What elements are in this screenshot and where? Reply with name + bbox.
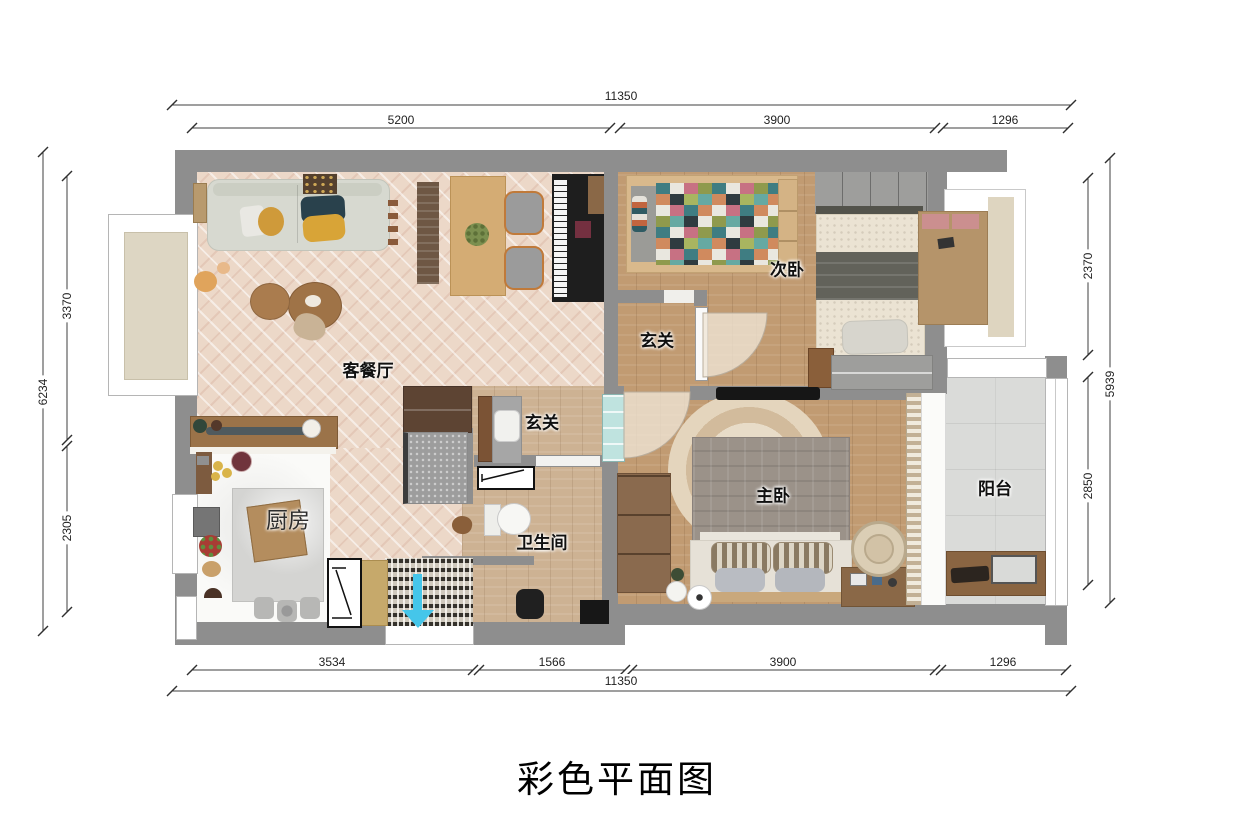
sofa-throw-yellow [302, 213, 346, 243]
wall-balcony-corner-tr [1045, 356, 1067, 378]
desk-photo-frame [850, 573, 867, 586]
side-table [193, 183, 207, 223]
coffee-table-dish [305, 295, 321, 307]
plan-title: 彩色平面图 [517, 749, 717, 803]
sideboard-plate [302, 419, 321, 438]
shower-unit [403, 432, 468, 504]
dim-bottom-seg2: 1566 [536, 655, 569, 669]
corridor-door-leaf [695, 307, 708, 381]
bathroom-door-symbol [477, 466, 535, 490]
wall-corridor-top [604, 290, 664, 303]
tv [716, 387, 820, 400]
bathroom-top-threshold [536, 456, 600, 466]
entrance-arrow-head-icon [402, 610, 434, 628]
lemon [211, 472, 220, 481]
washbasin-sink [494, 410, 520, 442]
food-plate-dark [231, 451, 252, 472]
dim-bottom-seg3: 3900 [767, 655, 800, 669]
rattan-chair-seat [864, 534, 894, 564]
wardrobe-master [617, 473, 671, 593]
piano-keys [554, 180, 567, 297]
dim-right-seg1: 2370 [1081, 250, 1095, 283]
single-bed-pillow [841, 319, 908, 355]
kitchen-back-door [176, 596, 197, 640]
dim-bottom-total: 11350 [602, 674, 640, 688]
balcony-window-right [1045, 378, 1068, 606]
wall-balcony-corner-br [1045, 600, 1067, 645]
room-label-hallway-lower: 玄关 [525, 409, 559, 434]
food-plate-tan [202, 561, 221, 577]
piano-bench [575, 221, 591, 238]
coffee-table-small [250, 283, 290, 320]
bay-window-bedroom2-seat [988, 197, 1014, 337]
bed-pillow-gray [775, 568, 825, 592]
bar-stool [277, 600, 297, 622]
sofa-pillow-mustard [258, 207, 284, 236]
bar-stool [300, 597, 320, 619]
bedside-table [666, 581, 687, 602]
dim-bottom-seg4: 1296 [987, 655, 1020, 669]
tatami-cushion [922, 214, 949, 229]
floor-cushion-orange [194, 271, 217, 292]
corridor-threshold [664, 290, 696, 303]
kids-bed-pillow [632, 196, 647, 232]
open-door-leaf [478, 396, 493, 462]
room-label-hallway-upper: 玄关 [640, 327, 674, 352]
office-chair [516, 589, 544, 619]
bed-foot-board [694, 592, 846, 602]
sideboard-bowl [193, 419, 207, 433]
balcony-drying-rack [991, 555, 1037, 584]
dim-bottom-seg1: 3534 [316, 655, 349, 669]
plant-pot [671, 568, 684, 581]
floor-mat-dark [580, 600, 609, 624]
dim-top-seg2: 3900 [761, 113, 794, 127]
wall-living-right [604, 172, 618, 294]
dim-left-seg2: 2305 [60, 512, 74, 545]
floor-cushion-small [217, 262, 230, 274]
bed-pillow-gray [715, 568, 765, 592]
wall-shelf [303, 174, 337, 194]
dim-left-seg1: 3370 [60, 290, 74, 323]
tatami-cushion [952, 214, 979, 229]
bay-window-living-seat [124, 232, 188, 380]
balcony-dark-item [951, 566, 990, 584]
wall-corridor-left [604, 292, 618, 390]
entry-cabinet [403, 386, 472, 433]
bead-curtain [906, 393, 922, 605]
lemon [213, 461, 223, 471]
wall-bottom-right [616, 604, 1067, 625]
dim-left-total: 6234 [36, 376, 50, 409]
floor-plan-page: 客餐厅 厨房 卫生间 玄关 玄关 次卧 主卧 阳台 11350 5200 390… [0, 0, 1240, 826]
glass-display-partition [602, 394, 625, 462]
dim-top-total: 11350 [602, 89, 640, 103]
room-label-balcony: 阳台 [978, 475, 1012, 500]
kitchen-fridge [193, 507, 220, 537]
piano-shelf [588, 176, 604, 214]
room-label-bathroom: 卫生间 [517, 529, 568, 554]
refrigerator-symbol [327, 558, 362, 628]
dresser-bedroom2 [831, 355, 933, 390]
dining-plant [465, 223, 489, 246]
dim-right-total: 5939 [1103, 368, 1117, 401]
storage-strip [358, 560, 388, 626]
decor-dots-column [388, 193, 398, 245]
dim-top-seg1: 5200 [385, 113, 418, 127]
balcony-window-top [947, 358, 1047, 378]
sideboard-bowl [211, 420, 222, 431]
dim-right-seg2: 2850 [1081, 470, 1095, 503]
sideboard-rail [206, 427, 316, 435]
bedside-table [687, 585, 712, 610]
kids-bed-quilt [656, 183, 778, 265]
room-label-bedroom2: 次卧 [770, 256, 804, 281]
kitchen-appliance [197, 456, 209, 465]
entrance-arrow-icon [413, 574, 422, 612]
runner-rug [417, 182, 439, 284]
room-label-kitchen: 厨房 [266, 503, 310, 535]
quilt-pattern [656, 183, 778, 265]
sofa-seam [297, 185, 298, 243]
room-label-living: 客餐厅 [343, 357, 394, 382]
dining-chair [504, 246, 544, 290]
single-bed-blanket [816, 252, 923, 300]
wall-corridor-doorpost [694, 290, 707, 306]
balcony-door-track [921, 393, 946, 605]
room-label-master: 主卧 [756, 482, 790, 507]
dim-top-seg3: 1296 [989, 113, 1022, 127]
lemon [222, 468, 232, 478]
food-plate-red [199, 535, 222, 557]
desk-item [888, 578, 897, 587]
bar-stool [254, 597, 274, 619]
wall-top [175, 150, 1007, 172]
dining-chair [504, 191, 544, 235]
